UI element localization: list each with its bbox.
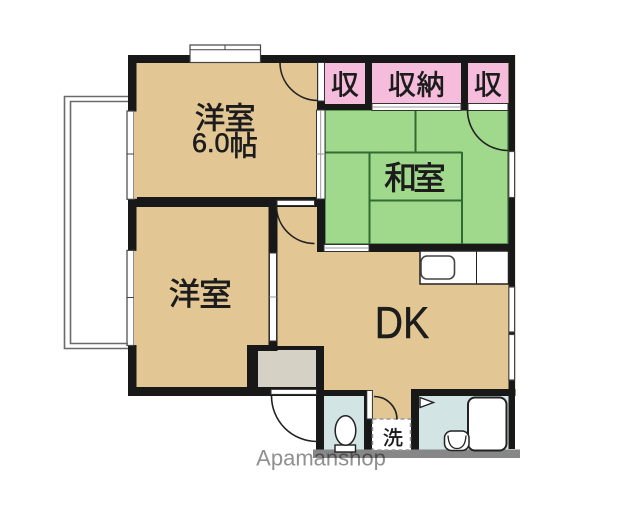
svg-text:DK: DK: [375, 298, 429, 348]
svg-text:6.0: 6.0: [192, 128, 230, 158]
svg-text:Apamanshop: Apamanshop: [256, 446, 386, 471]
